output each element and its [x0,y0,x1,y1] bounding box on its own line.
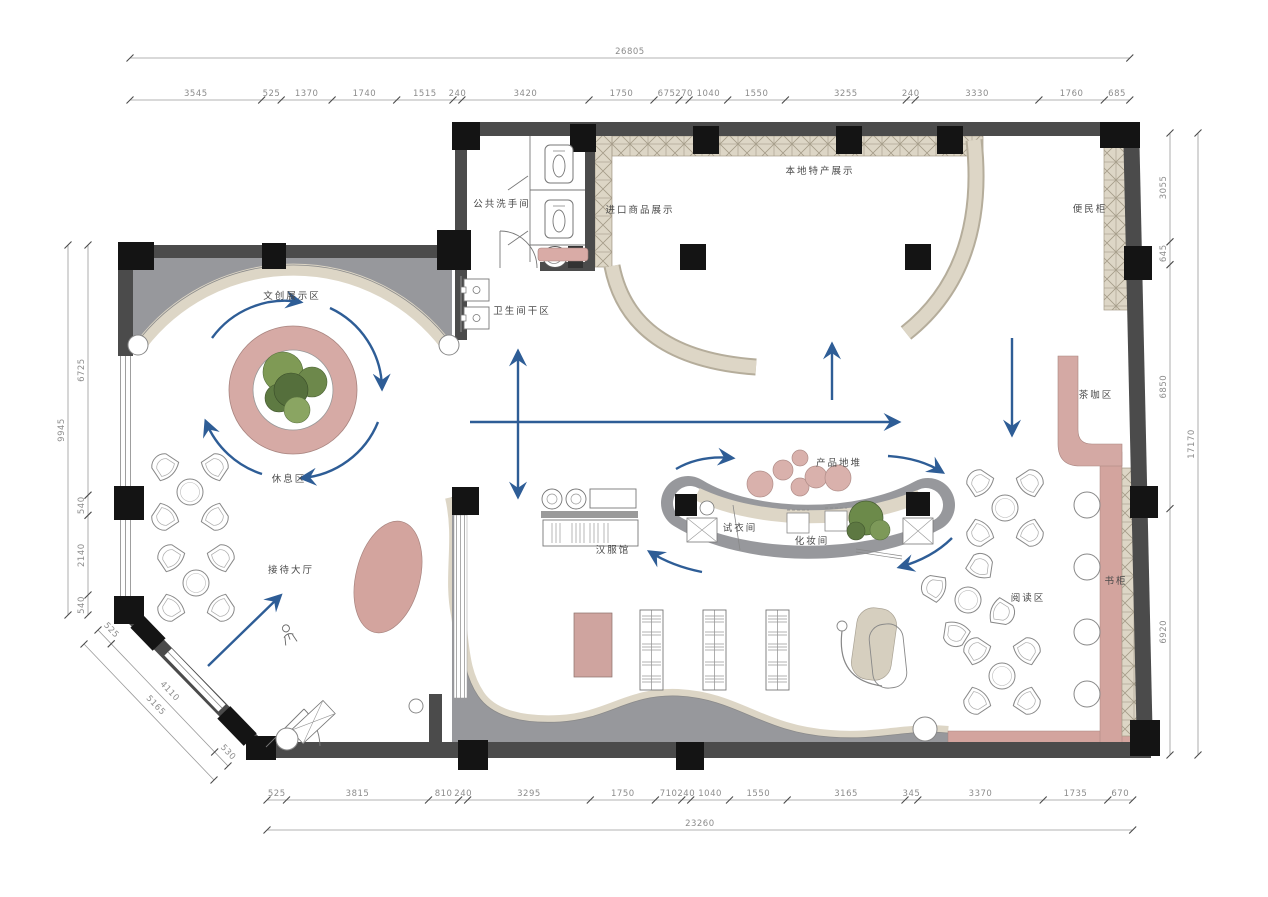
dimension-value: 3815 [346,789,370,799]
dimension-value: 540 [77,496,87,514]
dimension-value: 26805 [615,47,645,57]
dimension-value: 3295 [517,789,541,799]
dimension-value: 240 [677,789,695,799]
dimension-value: 1550 [745,89,769,99]
seating-cluster-3[interactable] [936,439,1074,577]
dimension-value: 3545 [184,89,208,99]
imported-display-arc-fill [612,266,756,367]
dimension-value: 1370 [295,89,319,99]
dimension-value: 6920 [1159,620,1169,644]
fitting-bench-right [903,518,933,544]
dimension-value: 645 [1159,244,1169,262]
dimension-value: 810 [435,789,453,799]
label-public-washroom: 公共洗手间 [473,198,531,210]
top-wall-right-block [452,122,1140,136]
counter-arrow-3 [650,552,702,572]
floor-plan-svg: 公共洗手间 卫生间干区 进口商品展示 本地特产展示 便民柜 文创展示区 休息区 … [0,0,1268,897]
dimension-value: 670 [1111,789,1129,799]
stall-door-2[interactable] [508,231,528,245]
person-figure [279,623,297,645]
dimension-value: 345 [903,789,921,799]
label-makeup-room: 化妆间 [795,535,830,547]
stall-door-1[interactable] [508,176,528,190]
label-reception-hall: 接待大厅 [268,564,314,576]
egg-chair[interactable] [837,606,908,690]
label-cultural-creative: 文创展示区 [263,290,321,302]
dimension-value: 675 [658,89,676,99]
dimension-value: 3420 [514,89,538,99]
dimension-value: 4110 [158,680,182,704]
round-column-south [913,717,937,741]
counter-arrow-2 [888,456,942,472]
dimension-value: 710 [660,789,678,799]
label-toilet-dry-area: 卫生间干区 [493,305,551,317]
floor-plan-canvas: 公共洗手间 卫生间干区 进口商品展示 本地特产展示 便民柜 文创展示区 休息区 … [0,0,1268,897]
top-wall-left-block [120,245,465,258]
gondola-shelf-2 [703,610,726,690]
top-display-band [597,136,983,156]
dimension-value: 1040 [698,789,722,799]
dimension-value: 3165 [834,789,858,799]
dimension-value: 3330 [965,89,989,99]
dimension-value: 17170 [1187,429,1197,459]
mid-spine-window [454,515,467,698]
spine-closet-wall [429,694,442,758]
round-column-west [128,335,148,355]
dimension-value: 5165 [144,694,168,718]
dimension-value: 3370 [969,789,993,799]
dimension-value: 685 [1108,89,1126,99]
washroom-door-swing [500,231,537,268]
dimension-value: 530 [218,743,237,763]
dimension-value: 1550 [747,789,771,799]
dimension-value: 540 [77,596,87,614]
dimension-value: 240 [454,789,472,799]
dimension-value: 1750 [611,789,635,799]
dimension-value: 1750 [610,89,634,99]
dimension-value: 3055 [1159,176,1169,200]
label-bookcase: 书柜 [1104,575,1127,587]
label-rest-area: 休息区 [272,473,307,485]
dimension-value: 1735 [1064,789,1088,799]
dimension-value: 525 [268,789,286,799]
dimension-value: 9945 [57,418,67,442]
label-product-stack: 产品地堆 [816,457,862,469]
label-reading-area: 阅读区 [1011,592,1046,604]
gondola-shelf-1 [640,610,663,690]
left-wall-window-2 [117,520,134,598]
curved-counter [675,492,933,559]
fitting-bench-left [687,518,717,542]
dimension-value: 1515 [413,89,437,99]
entrance-column [276,728,298,750]
dimension-value: 6850 [1159,375,1169,399]
dimension-value: 23260 [685,819,715,829]
dimension-value: 240 [449,89,467,99]
squat-toilet-1 [545,145,573,183]
label-imported-goods: 进口商品展示 [605,204,674,216]
dimension-value: 1760 [1060,89,1084,99]
hanfu-service-counter [541,489,638,546]
small-column [409,699,423,713]
gondola-shelf-3 [766,610,789,690]
sink-1 [461,279,489,301]
sink-2 [461,307,489,329]
dimension-value: 270 [675,89,693,99]
squat-toilet-2 [545,200,573,238]
right-display-arc-fill [906,140,976,333]
dimension-value: 2140 [77,543,87,567]
label-tea-coffee: 茶咖区 [1079,389,1114,401]
label-local-specialty: 本地特产展示 [785,165,854,177]
round-column-east [439,335,459,355]
dimension-value: 525 [263,89,281,99]
dimension-line [84,644,214,780]
central-planter [229,326,357,454]
toilet-mat [538,248,588,261]
label-hanfu-hall: 汉服馆 [596,544,631,556]
label-convenience-cabinet: 便民柜 [1073,203,1108,215]
makeup-table-1 [787,510,809,533]
tea-counter [1058,356,1122,466]
dimension-value: 3255 [834,89,858,99]
side-tables [1074,492,1100,707]
dimension-value: 240 [902,89,920,99]
left-wall-window-1 [117,356,134,486]
dimension-value: 1040 [697,89,721,99]
counter-arrow-1 [676,457,732,469]
dimension-value: 1740 [353,89,377,99]
pink-display-table [574,613,612,677]
makeup-table-2 [825,508,847,531]
toilet-east-hatch [595,135,612,267]
dimension-value: 6725 [77,358,87,382]
reception-desk [343,514,433,640]
pink-strip-right [1100,452,1122,752]
label-fitting-room: 试衣间 [723,522,758,534]
